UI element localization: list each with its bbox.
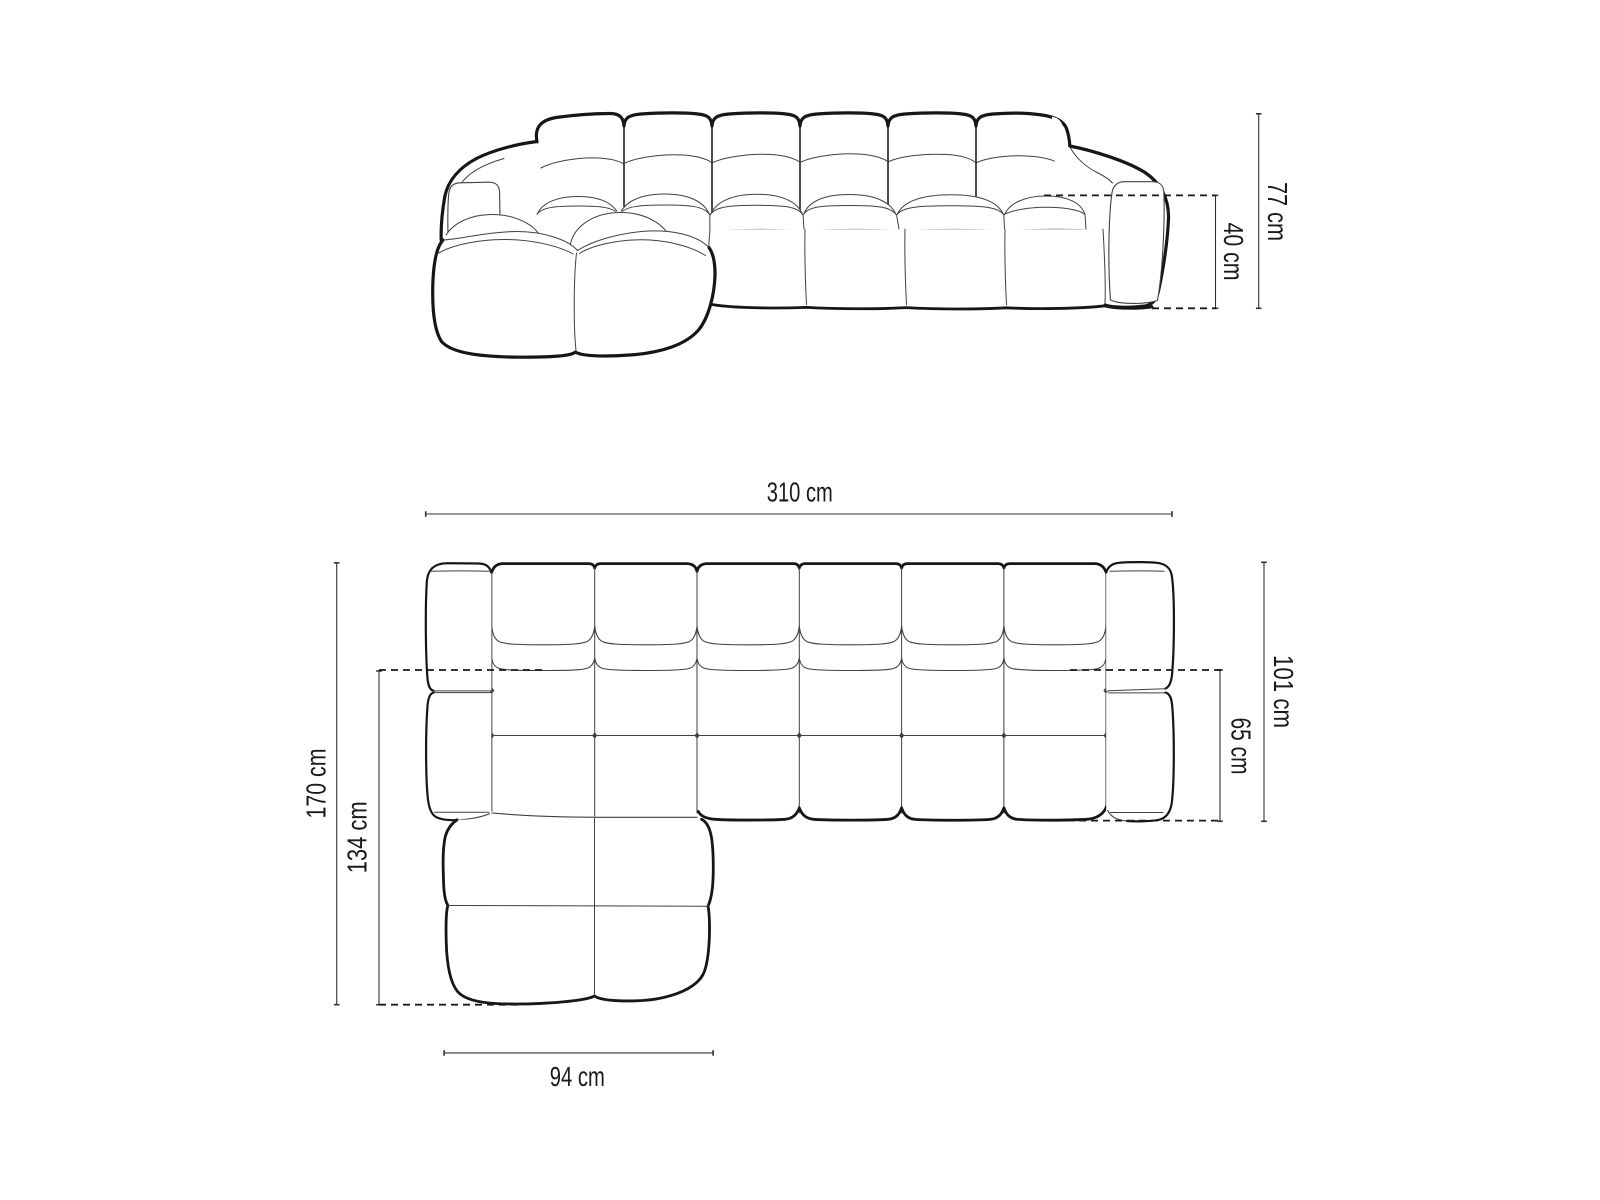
- svg-text:134 cm: 134 cm: [341, 801, 372, 873]
- svg-text:310 cm: 310 cm: [767, 477, 833, 508]
- svg-text:77 cm: 77 cm: [1262, 182, 1293, 241]
- svg-text:40 cm: 40 cm: [1218, 223, 1249, 281]
- svg-text:170 cm: 170 cm: [301, 749, 332, 819]
- svg-text:101 cm: 101 cm: [1268, 655, 1299, 728]
- svg-text:94 cm: 94 cm: [550, 1061, 605, 1092]
- svg-text:65 cm: 65 cm: [1226, 718, 1257, 775]
